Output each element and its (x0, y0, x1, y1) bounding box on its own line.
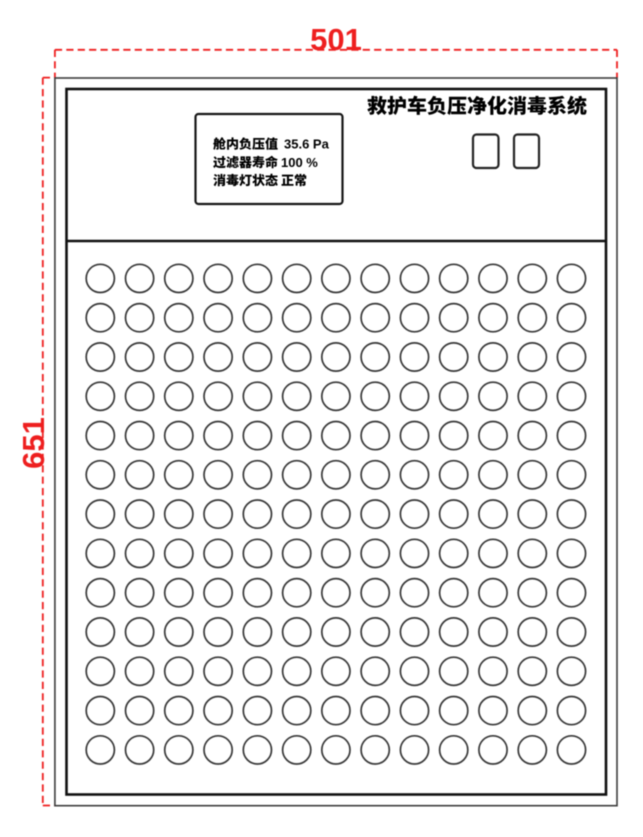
svg-text:651: 651 (16, 417, 51, 469)
svg-text:35.6 Pa: 35.6 Pa (284, 137, 330, 152)
svg-text:100 %: 100 % (281, 155, 318, 170)
svg-text:501: 501 (310, 22, 362, 57)
